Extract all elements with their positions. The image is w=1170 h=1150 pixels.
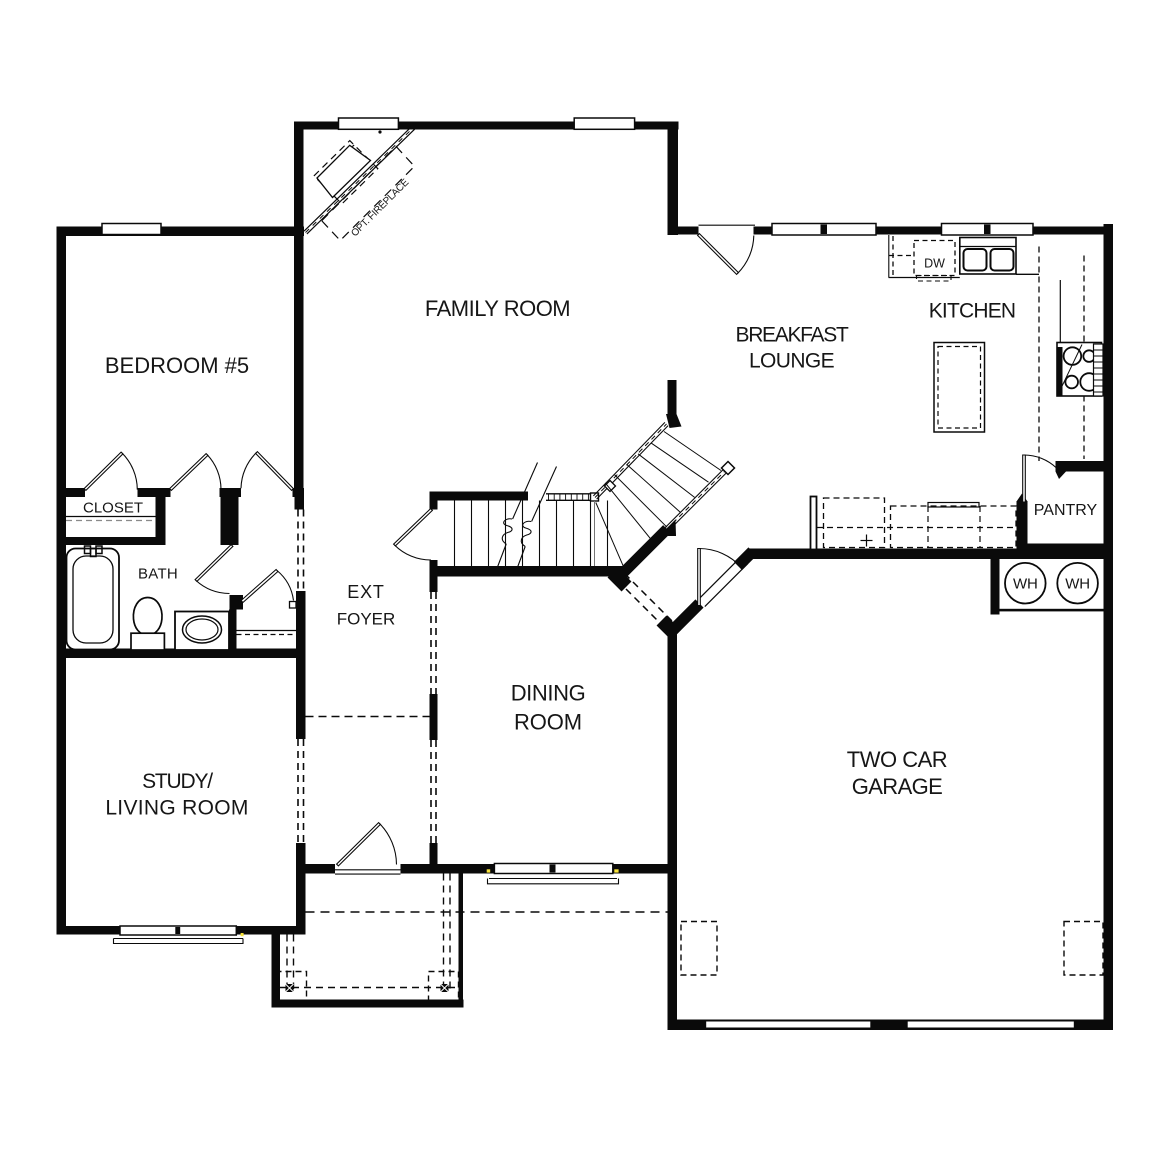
svg-text:KITCHEN: KITCHEN bbox=[929, 300, 1016, 323]
svg-text:BREAKFAST: BREAKFAST bbox=[735, 324, 848, 347]
svg-text:FAMILY ROOM: FAMILY ROOM bbox=[425, 296, 570, 321]
svg-text:STUDY/: STUDY/ bbox=[142, 770, 213, 793]
svg-text:BEDROOM #5: BEDROOM #5 bbox=[105, 353, 249, 378]
svg-text:WH: WH bbox=[1065, 575, 1090, 592]
svg-text:PANTRY: PANTRY bbox=[1034, 502, 1098, 519]
svg-text:LOUNGE: LOUNGE bbox=[749, 350, 835, 373]
svg-text:EXT: EXT bbox=[347, 582, 384, 602]
svg-text:FOYER: FOYER bbox=[337, 609, 396, 628]
svg-text:TWO CAR: TWO CAR bbox=[847, 747, 947, 772]
svg-text:GARAGE: GARAGE bbox=[852, 774, 943, 799]
svg-text:DINING: DINING bbox=[511, 681, 586, 706]
svg-text:DW: DW bbox=[924, 257, 945, 271]
svg-text:BATH: BATH bbox=[138, 566, 178, 583]
svg-text:CLOSET: CLOSET bbox=[83, 500, 143, 517]
svg-text:LIVING ROOM: LIVING ROOM bbox=[105, 797, 248, 820]
svg-text:WH: WH bbox=[1013, 575, 1038, 592]
svg-text:ROOM: ROOM bbox=[514, 710, 582, 735]
